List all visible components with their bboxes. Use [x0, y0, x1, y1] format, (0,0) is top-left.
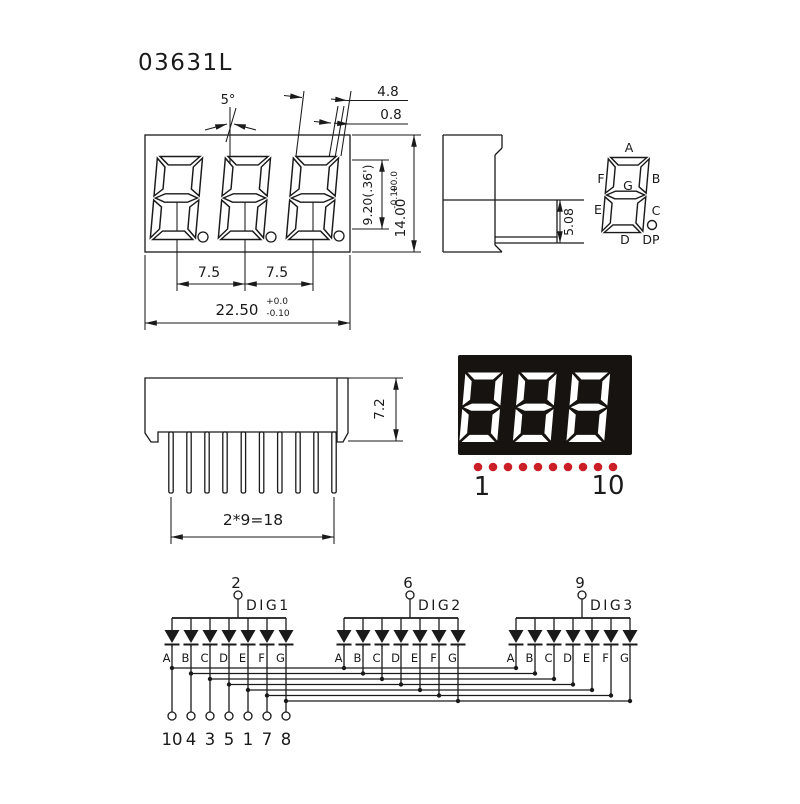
seg-letter: G	[276, 651, 285, 665]
dim-pin-span: 2*9=18	[223, 511, 283, 529]
dig3-label: DIG3	[590, 598, 635, 614]
bottom-pin-number: 4	[186, 730, 197, 749]
seg-letter: C	[544, 651, 552, 665]
bottom-pin-number: 1	[243, 730, 254, 749]
dim-seg-width: 4.8	[377, 84, 398, 100]
seg-letter: E	[239, 651, 246, 665]
dig2-pin-terminal	[406, 591, 414, 599]
seg-letter: F	[602, 651, 609, 665]
pin-start-label: 1	[474, 472, 491, 502]
dig1-label: DIG1	[246, 598, 291, 614]
segment-diagram-digit	[602, 157, 649, 232]
dim-angle: 5°	[221, 93, 236, 108]
datasheet-drawing: 03631L	[0, 0, 800, 800]
pin-dot	[579, 463, 588, 472]
front-digit-1	[150, 157, 202, 240]
dig1-pin-terminal	[234, 591, 242, 599]
dp-outline-1	[198, 232, 208, 242]
pin-dot	[549, 463, 558, 472]
seg-letter: D	[391, 651, 400, 665]
pin-end-label: 10	[591, 471, 624, 501]
seg-letter: D	[219, 651, 228, 665]
pin-dot	[504, 463, 513, 472]
pin-dot	[519, 463, 528, 472]
segment-label-d: D	[620, 232, 630, 247]
product-photo: 1 10	[458, 355, 632, 502]
bottom-pin-number: 7	[262, 730, 273, 749]
pin-marker-dots	[474, 463, 618, 472]
dig3-pin-number: 9	[575, 574, 585, 592]
seg-letter: A	[507, 651, 515, 665]
dim-width-tol-plus: +0.0	[266, 297, 288, 307]
dim-pitch-left: 7.5	[198, 265, 220, 281]
front-digit-2	[218, 157, 270, 240]
dim-width-tol-minus: -0.10	[266, 309, 290, 319]
seg-letter: B	[182, 651, 190, 665]
bottom-pin-number: 10	[162, 730, 183, 749]
dim-height-tol-minus: -0.10	[390, 185, 400, 209]
segment-label-f: F	[597, 171, 604, 186]
pin-dot	[474, 463, 483, 472]
dp-outline-3	[334, 231, 344, 241]
segment-label-dp: DP	[642, 232, 660, 247]
segment-label-b: B	[652, 171, 661, 186]
front-view	[145, 91, 421, 330]
segment-label-a: A	[625, 140, 634, 155]
segment-label-e: E	[594, 202, 602, 217]
dim-width: 22.50	[216, 301, 259, 319]
seg-letter: C	[372, 651, 380, 665]
seg-letter: B	[354, 651, 362, 665]
seg-letter: G	[620, 651, 629, 665]
dim-body-height: 7.2	[372, 398, 388, 419]
segment-bus-lines	[172, 668, 630, 701]
dig1-pin-number: 2	[231, 574, 241, 592]
pin-dot	[594, 463, 603, 472]
seg-letter: F	[258, 651, 265, 665]
dig2-label: DIG2	[418, 598, 463, 614]
bottom-pin-numbers: 10 4 3 5 1 7 8	[162, 730, 292, 749]
seg-letter: D	[563, 651, 572, 665]
dim-pitch-right: 7.5	[266, 265, 288, 281]
segment-label-c: C	[652, 203, 661, 218]
segment-diagram-dp	[648, 221, 657, 230]
pin-dot	[489, 463, 498, 472]
bottom-pin-number: 3	[205, 730, 216, 749]
seg-letter: A	[163, 651, 171, 665]
seg-letter: F	[430, 651, 437, 665]
bottom-pin-number: 8	[281, 730, 292, 749]
front-view-digits	[150, 157, 338, 240]
dim-digit-height: 9.20(.36')	[360, 165, 375, 226]
front-digit-3	[286, 157, 338, 240]
dim-depth: 5.08	[561, 208, 576, 236]
dim-seg-gap: 0.8	[380, 107, 401, 123]
pin-dot	[564, 463, 573, 472]
part-number: 03631L	[138, 50, 233, 76]
seg-letter: C	[200, 651, 208, 665]
segment-diagram: A F G B E C D DP	[594, 140, 661, 247]
bottom-pin-terminals	[168, 712, 290, 720]
seg-letter: A	[335, 651, 343, 665]
seg-letter: E	[411, 651, 418, 665]
dig3-pin-terminal	[578, 591, 586, 599]
dig2-pin-number: 6	[403, 574, 413, 592]
pin-dot	[534, 463, 543, 472]
seg-letter: G	[448, 651, 457, 665]
dp-outline-2	[266, 232, 276, 242]
seg-letter: B	[526, 651, 534, 665]
pin-dot	[609, 463, 618, 472]
seg-letter: E	[583, 651, 590, 665]
bottom-pin-number: 5	[224, 730, 235, 749]
segment-label-g: G	[623, 178, 633, 193]
datasheet-page: 03631L	[0, 0, 800, 800]
